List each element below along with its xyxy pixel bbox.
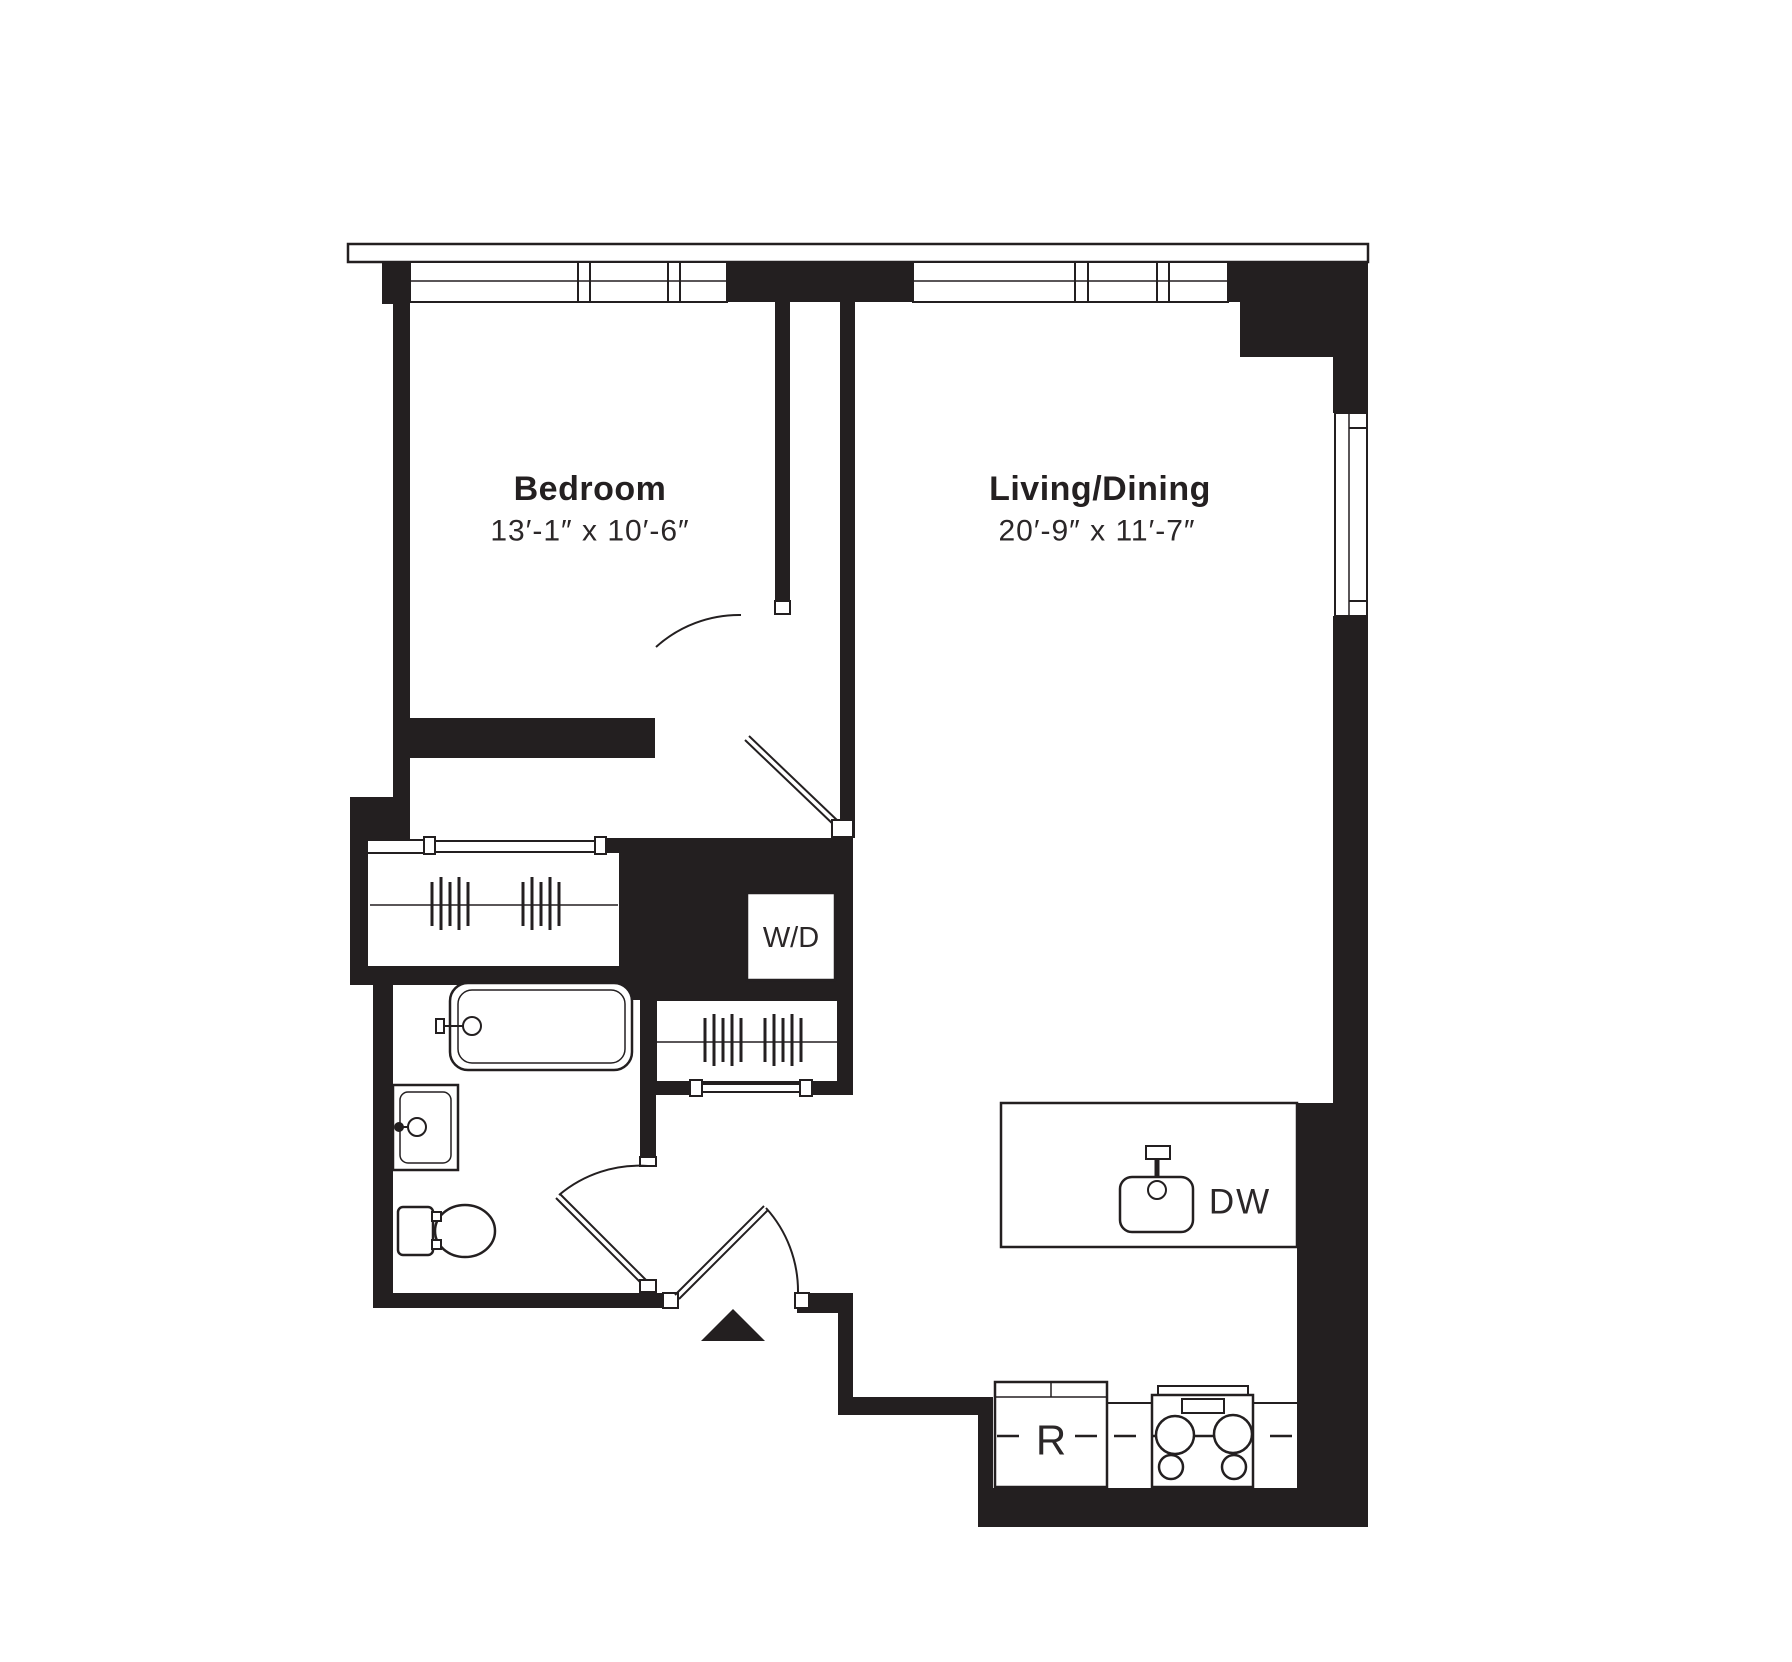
entry-arrow-icon [701, 1309, 765, 1341]
wall-step-v2 [978, 1415, 993, 1490]
wall-left-jog [350, 797, 410, 842]
washer-dryer: W/D [747, 893, 835, 980]
washer-dryer-label: W/D [763, 922, 819, 954]
floor-plan: W/D [0, 0, 1792, 1662]
bathroom-door [556, 1157, 656, 1292]
bedroom-closet [367, 837, 620, 967]
hall-closet [656, 1000, 838, 1096]
wall-bath-bottom [373, 1293, 663, 1308]
living-window [913, 262, 1228, 302]
wall-top-right-corner [1228, 262, 1368, 413]
wall-right-mid [1333, 616, 1368, 1103]
closet-sliding-door [367, 837, 606, 854]
bedroom-window [410, 262, 727, 302]
bedroom-door [656, 601, 853, 837]
living-dining-label-group: Living/Dining 20′-9″ x 11′-7″ [989, 470, 1211, 548]
entry-door [663, 1206, 809, 1308]
wall-bath-closet [640, 1000, 656, 1158]
wall-top-pier [727, 262, 913, 302]
bedroom-label-group: Bedroom 13′-1″ x 10′-6″ [490, 470, 689, 548]
toilet [398, 1205, 495, 1257]
bathroom-sink [393, 1085, 458, 1170]
bedroom-label: Bedroom [514, 470, 667, 508]
bedroom-dimensions: 13′-1″ x 10′-6″ [490, 515, 689, 548]
exterior-slab-strip [348, 244, 1368, 262]
wall-hall-closet-right [838, 1000, 853, 1095]
wall-bedcloset-stub [606, 838, 620, 853]
bathtub [436, 983, 632, 1070]
wall-bath-left [373, 962, 393, 1308]
wall-step-v1 [838, 1293, 853, 1415]
refrigerator-label: R [1036, 1417, 1066, 1464]
wall-right-lower [1297, 1103, 1368, 1527]
wall-step-h [838, 1397, 993, 1415]
dishwasher-label: DW [1209, 1183, 1271, 1222]
side-window [1335, 413, 1367, 616]
wall-divider-b [840, 298, 855, 838]
living-dining-label: Living/Dining [989, 470, 1211, 508]
wall-closet-stub-left [656, 1082, 690, 1095]
kitchen-island: DW [1001, 1103, 1297, 1247]
wall-divider-a [775, 298, 790, 613]
wall-closet-stub-right [812, 1082, 838, 1095]
wall-bedroom-bottom [403, 718, 655, 758]
living-dining-dimensions: 20′-9″ x 11′-7″ [998, 515, 1195, 548]
